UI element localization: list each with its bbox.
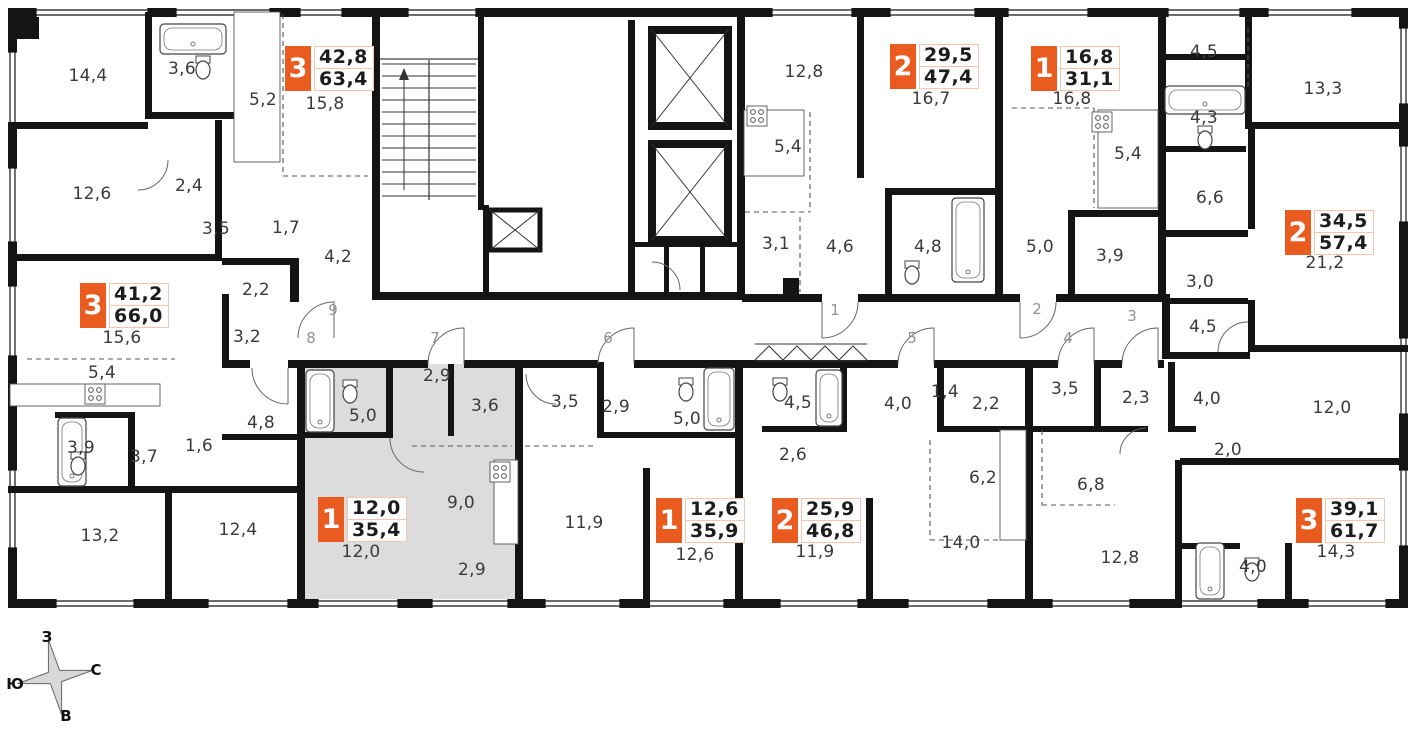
- unit-number-label: 5: [907, 329, 917, 347]
- apartment-living-area: 41,2: [109, 283, 169, 305]
- unit-number-label: 6: [603, 329, 613, 347]
- apartment-rooms-count: 2: [772, 498, 798, 543]
- apartment-badge[interactable]: 3 41,2 66,0: [80, 283, 169, 328]
- room-area-label: 2,9: [423, 366, 451, 386]
- apartment-areas: 12,6 35,9: [685, 498, 745, 543]
- room-area-label: 12,6: [675, 545, 714, 565]
- room-area-label: 3,9: [1096, 246, 1124, 266]
- room-area-label: 1,4: [931, 382, 959, 402]
- room-area-label: 2,6: [779, 445, 807, 465]
- apartment-living-area: 34,5: [1314, 210, 1374, 232]
- apartment-living-area: 39,1: [1325, 498, 1385, 520]
- room-area-label: 11,9: [564, 513, 603, 533]
- room-area-label: 5,4: [88, 363, 116, 383]
- apartment-badge[interactable]: 3 39,1 61,7: [1296, 498, 1385, 543]
- room-area-label: 5,0: [673, 409, 701, 429]
- room-area-label: 9,0: [447, 493, 475, 513]
- apartment-areas: 34,5 57,4: [1314, 210, 1374, 255]
- room-area-label: 3,5: [202, 219, 230, 239]
- unit-number-label: 1: [830, 301, 840, 319]
- apartment-rooms-count: 1: [318, 497, 344, 542]
- room-area-label: 1,7: [272, 218, 300, 238]
- room-area-label: 4,3: [1190, 108, 1218, 128]
- apartment-areas: 42,8 63,4: [314, 46, 374, 91]
- room-area-label: 12,4: [218, 520, 257, 540]
- apartment-badge[interactable]: 1 12,6 35,9: [656, 498, 745, 543]
- apartment-living-area: 16,8: [1060, 46, 1120, 68]
- apartment-living-area: 12,6: [685, 498, 745, 520]
- apartment-rooms-count: 3: [1296, 498, 1322, 543]
- room-area-label: 16,8: [1052, 89, 1091, 109]
- room-area-label: 4,5: [784, 393, 812, 413]
- apartment-areas: 16,8 31,1: [1060, 46, 1120, 91]
- apartment-living-area: 12,0: [347, 497, 407, 519]
- room-area-label: 3,2: [233, 327, 261, 347]
- apartment-total-area: 35,9: [685, 520, 745, 543]
- apartment-badge[interactable]: 2 25,9 46,8: [772, 498, 861, 543]
- apartment-rooms-count: 1: [1031, 46, 1057, 91]
- apartment-living-area: 25,9: [801, 498, 861, 520]
- apartment-living-area: 42,8: [314, 46, 374, 68]
- compass-east-label: В: [60, 707, 71, 725]
- apartment-rooms-count: 1: [656, 498, 682, 543]
- room-area-label: 5,4: [1114, 144, 1142, 164]
- apartment-total-area: 66,0: [109, 305, 169, 328]
- room-area-label: 14,3: [1316, 542, 1355, 562]
- room-area-label: 4,8: [247, 413, 275, 433]
- room-area-label: 2,3: [1122, 388, 1150, 408]
- room-area-label: 2,9: [458, 560, 486, 580]
- apartment-badge[interactable]: 2 29,5 47,4: [890, 44, 979, 89]
- apartment-total-area: 63,4: [314, 68, 374, 91]
- compass-west-label: З: [42, 628, 53, 646]
- room-area-label: 5,4: [774, 137, 802, 157]
- room-area-label: 11,9: [795, 542, 834, 562]
- apartment-total-area: 57,4: [1314, 232, 1374, 255]
- apartment-badge[interactable]: 3 42,8 63,4: [285, 46, 374, 91]
- room-area-label: 4,5: [1189, 317, 1217, 337]
- room-area-label: 5,2: [249, 90, 277, 110]
- room-area-label: 12,8: [1100, 548, 1139, 568]
- room-area-label: 12,6: [72, 184, 111, 204]
- room-area-label: 14,4: [68, 66, 107, 86]
- room-area-label: 3,7: [130, 447, 158, 467]
- room-area-label: 4,0: [1193, 389, 1221, 409]
- apartment-rooms-count: 3: [285, 46, 311, 91]
- unit-number-label: 4: [1063, 329, 1073, 347]
- compass-south-label: Ю: [6, 675, 24, 693]
- room-area-label: 2,9: [602, 397, 630, 417]
- apartment-badge[interactable]: 2 34,5 57,4: [1285, 210, 1374, 255]
- apartment-areas: 25,9 46,8: [801, 498, 861, 543]
- room-area-label: 3,9: [67, 438, 95, 458]
- room-area-label: 3,1: [762, 234, 790, 254]
- unit-number-label: 7: [430, 329, 440, 347]
- unit-number-label: 8: [306, 329, 316, 347]
- room-area-label: 16,7: [911, 89, 950, 109]
- room-area-label: 6,6: [1196, 188, 1224, 208]
- room-area-label: 4,8: [914, 237, 942, 257]
- room-area-label: 4,2: [324, 247, 352, 267]
- room-area-label: 12,8: [784, 62, 823, 82]
- room-area-label: 2,2: [242, 280, 270, 300]
- room-area-label: 3,6: [471, 396, 499, 416]
- room-area-label: 6,8: [1077, 475, 1105, 495]
- room-area-label: 12,0: [1312, 398, 1351, 418]
- apartment-rooms-count: 2: [890, 44, 916, 89]
- apartment-areas: 12,0 35,4: [347, 497, 407, 542]
- floor-plan: 3 42,8 63,4 15,814,43,65,212,62,43,51,74…: [0, 0, 1416, 733]
- apartment-rooms-count: 2: [1285, 210, 1311, 255]
- floor-plan-labels: 3 42,8 63,4 15,814,43,65,212,62,43,51,74…: [0, 0, 1416, 733]
- unit-number-label: 9: [328, 301, 338, 319]
- room-area-label: 1,6: [185, 436, 213, 456]
- room-area-label: 3,0: [1186, 272, 1214, 292]
- room-area-label: 3,5: [1051, 379, 1079, 399]
- room-area-label: 5,0: [349, 406, 377, 426]
- room-area-label: 13,2: [80, 526, 119, 546]
- room-area-label: 2,0: [1214, 440, 1242, 460]
- room-area-label: 3,5: [551, 392, 579, 412]
- apartment-areas: 41,2 66,0: [109, 283, 169, 328]
- apartment-total-area: 31,1: [1060, 68, 1120, 91]
- apartment-areas: 39,1 61,7: [1325, 498, 1385, 543]
- room-area-label: 2,2: [972, 394, 1000, 414]
- room-area-label: 21,2: [1305, 253, 1344, 273]
- room-area-label: 4,5: [1190, 42, 1218, 62]
- apartment-total-area: 46,8: [801, 520, 861, 543]
- unit-number-label: 3: [1127, 307, 1137, 325]
- room-area-label: 14,0: [941, 533, 980, 553]
- room-area-label: 4,6: [826, 237, 854, 257]
- room-area-label: 13,3: [1303, 79, 1342, 99]
- apartment-total-area: 35,4: [347, 519, 407, 542]
- room-area-label: 6,2: [969, 468, 997, 488]
- room-area-label: 2,4: [175, 176, 203, 196]
- apartment-badge[interactable]: 1 12,0 35,4: [318, 497, 407, 542]
- apartment-badge[interactable]: 1 16,8 31,1: [1031, 46, 1120, 91]
- apartment-areas: 29,5 47,4: [919, 44, 979, 89]
- room-area-label: 15,6: [102, 328, 141, 348]
- room-area-label: 4,0: [884, 394, 912, 414]
- room-area-label: 4,0: [1239, 557, 1267, 577]
- room-area-label: 5,0: [1026, 237, 1054, 257]
- room-area-label: 15,8: [305, 94, 344, 114]
- room-area-label: 3,6: [168, 59, 196, 79]
- compass-north-label: С: [90, 661, 101, 679]
- unit-number-label: 2: [1032, 300, 1042, 318]
- room-area-label: 12,0: [341, 542, 380, 562]
- apartment-total-area: 61,7: [1325, 520, 1385, 543]
- apartment-rooms-count: 3: [80, 283, 106, 328]
- apartment-total-area: 47,4: [919, 66, 979, 89]
- apartment-living-area: 29,5: [919, 44, 979, 66]
